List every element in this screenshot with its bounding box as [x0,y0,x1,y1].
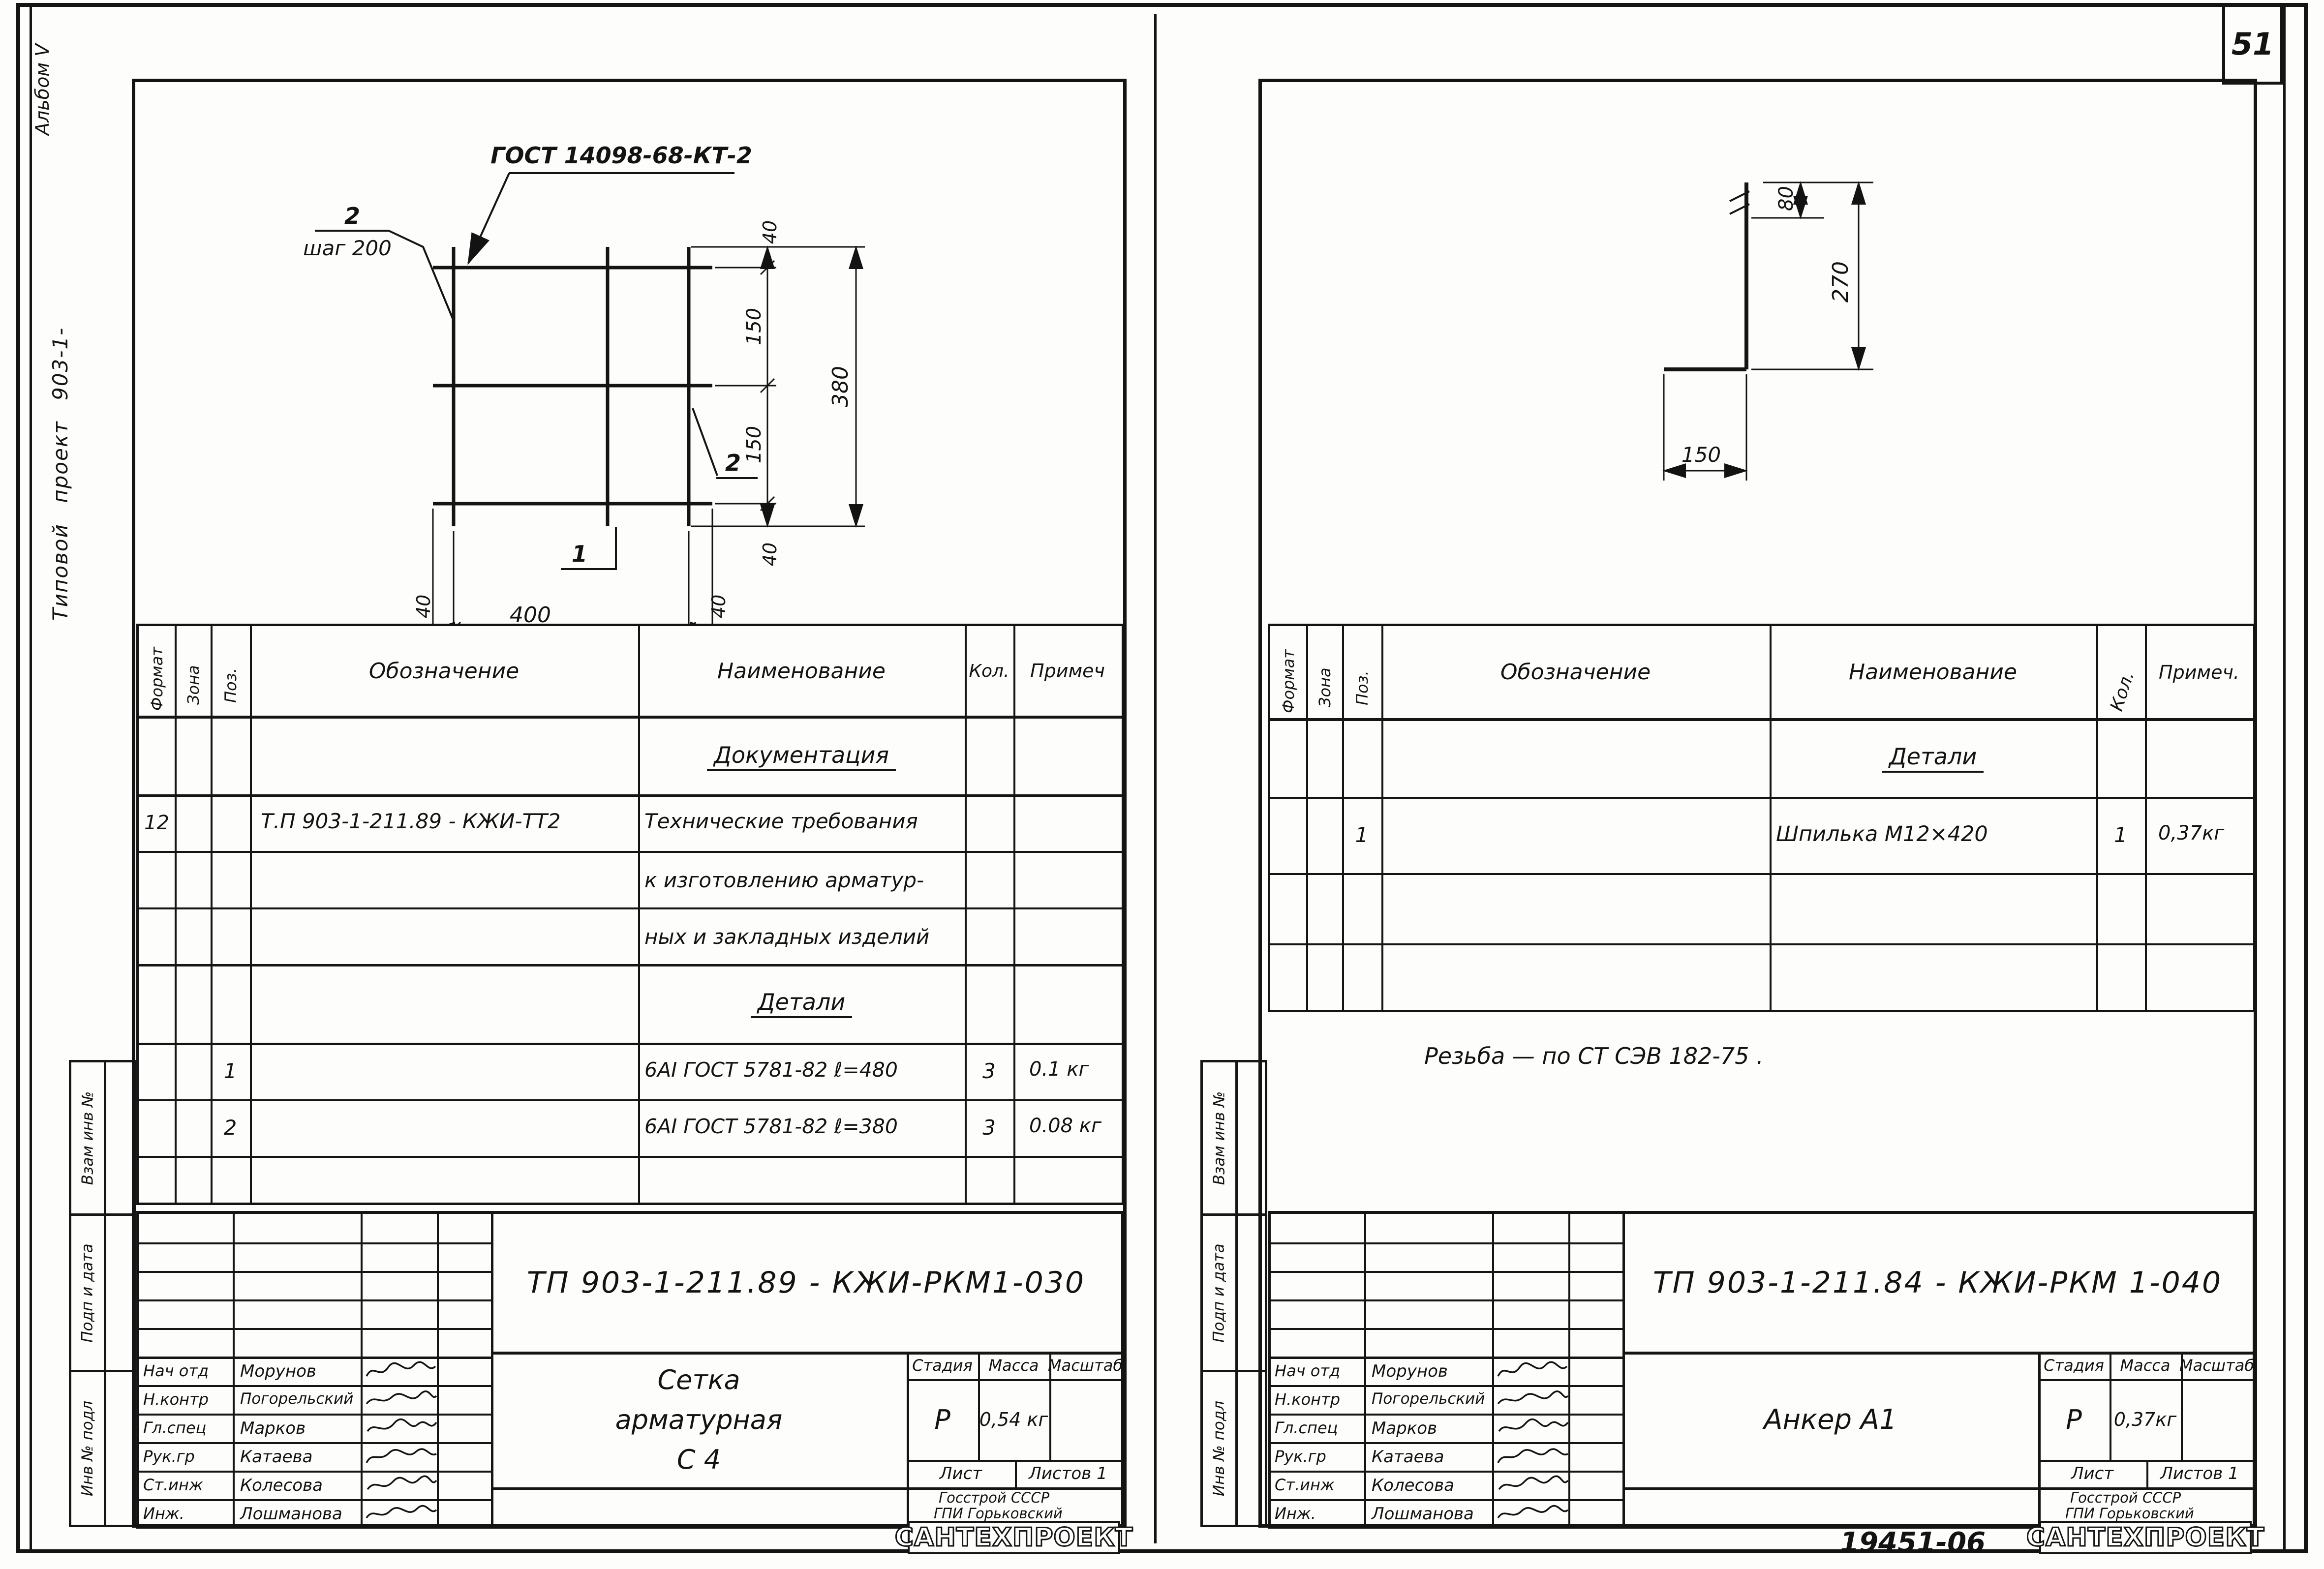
tb-row-line [1271,1242,1622,1244]
signer-name: Марков [1372,1418,1437,1438]
signature-scribble [1496,1360,1570,1382]
pos-value: 1 [1355,823,1369,847]
stamp-empty-cell [104,1062,133,1213]
dim-150-upper: 150 [743,308,765,345]
cell-pos: 1 [211,1043,250,1099]
signer-name: Колесова [1372,1476,1454,1495]
stage-label-cell: Стадия [2038,1352,2110,1379]
pos-mark-top-sub: шаг 200 [303,236,392,260]
stamp-vzam-inv-label: Взам инв № [79,1091,96,1185]
row-line [1270,718,2253,721]
row-line [1270,873,2253,875]
tb-row-line [139,1499,491,1501]
tb-col-line [361,1214,363,1526]
sheet-cell: Лист [2038,1460,2146,1487]
scale-label: Масштаб [2179,1356,2254,1375]
signer-role: Инж. [143,1504,184,1523]
org-logo-box: САНТЕХПРОЕКТ [2039,1521,2252,1554]
row-line [139,851,1122,853]
cell-note: 0,37кг [2158,822,2224,845]
left-title-block: ТП 903-1-211.89 - КЖИ-РКМ1-030 Сетка арм… [136,1211,1124,1529]
signer-name: Катаева [240,1447,312,1467]
album-label: Альбом V [31,44,53,135]
title-line3: С 4 [677,1444,721,1475]
cell-name-line3: ных и закладных изделий [644,925,929,949]
sheet-label: Лист [940,1464,982,1483]
signer-name: Лошманова [240,1504,342,1524]
header-designation-label: Обозначение [369,659,519,684]
signer-name: Погорельский [240,1390,353,1408]
right-title-block: ТП 903-1-211.84 - КЖИ-РКМ 1-040 Анкер А1… [1268,1211,2256,1529]
balloon-2: 2 [725,450,741,476]
tb-row-line [139,1442,491,1444]
cell-name-line2: к изготовлению арматур- [644,868,924,892]
scale-label-cell: Масштаб [1049,1352,1121,1379]
header-note-label: Примеч [1030,660,1105,682]
format-value: 12 [144,812,169,834]
dim-270: 270 [1828,261,1853,302]
right-edge-line [2283,3,2286,1553]
stamp-label-cell: Инв № подл [1203,1372,1235,1525]
header-designation: Обозначение [1381,626,1770,718]
signer-role: Гл.спец [1275,1418,1338,1437]
sheets-cell: Листов 1 [1015,1460,1121,1487]
tb-row-line [1271,1442,1622,1444]
stamp-vzam-inv-left: Взам инв № [69,1060,136,1216]
signer-name: Морунов [240,1361,316,1381]
header-pos: Поз. [221,668,240,703]
stamp-vzam-inv-label: Взам инв № [1210,1091,1228,1185]
org-line1: Госстрой СССР [939,1489,1049,1506]
signature-scribble [1496,1503,1570,1525]
tb-row-line [139,1242,491,1244]
sheets-label: Листов 1 [1029,1464,1107,1483]
mesh-bars [433,247,712,526]
tb-row-line [1271,1471,1622,1473]
pos-mark-top: 2 [344,203,360,229]
cell-note: 0.1 кг [1029,1058,1089,1081]
signer-name: Погорельский [1372,1390,1485,1408]
col-line [175,626,177,1203]
org-logo-box: САНТЕХПРОЕКТ [908,1521,1120,1554]
mass-value: 0,37кг [2114,1409,2177,1430]
signer-role: Н.контр [143,1390,209,1409]
stamp-podp-data-label: Подп и дата [79,1243,96,1342]
tb-row-line [1271,1357,1622,1359]
qty-value: 1 [2114,823,2127,847]
stamp-podp-data-left: Подп и дата [69,1213,136,1372]
row-line [139,964,1122,966]
header-designation: Обозначение [250,626,638,716]
cell-pos: 1 [1342,797,1381,873]
doc-number: ТП 903-1-211.84 - КЖИ-РКМ 1-040 [1653,1266,2222,1300]
signer-role: Ст.инж [1275,1476,1335,1494]
page-number: 51 [2232,26,2274,62]
org-line2: ГПИ Горьковский [2065,1505,2194,1522]
pos-value: 2 [224,1116,237,1140]
title-line1: Анкер А1 [1764,1404,1896,1436]
signature-scribble [365,1446,438,1468]
doc-number-cell: ТП 903-1-211.89 - КЖИ-РКМ1-030 [491,1214,1121,1352]
header-name: Наименование [638,626,965,716]
footer-code: 19451-06 [1840,1527,1986,1559]
signer-name: Морунов [1372,1361,1448,1381]
row-line [139,794,1122,797]
tb-col-line [233,1214,235,1526]
section-details: Детали [638,966,965,1040]
cell-name: 6АI ГОСТ 5781-82 ℓ=480 [644,1058,898,1082]
mass-value-cell: 0,37кг [2110,1379,2181,1460]
anchor-drawing: 80 270 150 [1268,82,2255,623]
thread-note: Резьба — по СТ СЭВ 182-75 . [1424,1043,1764,1069]
stage-label-cell: Стадия [907,1352,978,1379]
header-pos: Поз. [1353,670,1372,705]
left-edge-line [30,3,32,1553]
stamp-label-cell: Взам инв № [1203,1062,1235,1213]
title-cell: Сетка арматурная С 4 [491,1352,907,1487]
row-line [139,1156,1122,1158]
header-name-label: Наименование [1849,660,2017,685]
mesh-drawing: 40 150 150 40 380 40 400 40 480 ГОСТ 140… [137,82,1124,626]
dimension-lines-bottom [433,509,712,626]
stamp-label-cell: Подп и дата [71,1216,104,1370]
row-line [139,907,1122,909]
stamp-label-cell: Инв № подл [71,1372,104,1525]
signature-scribble [365,1360,438,1382]
signer-role: Нач отд [143,1361,209,1380]
dim-80: 80 [1775,186,1798,211]
cell-qty: 3 [965,1099,1013,1156]
cell-qty: 3 [965,1043,1013,1099]
pos-value: 1 [224,1059,237,1083]
mass-label: Масса [988,1356,1039,1375]
doc-number: ТП 903-1-211.89 - КЖИ-РКМ1-030 [527,1266,1085,1300]
stamp-inv-podl-left: Инв № подл [69,1370,136,1527]
signer-name: Лошманова [1372,1504,1474,1524]
scanned-drawing-page: 51 19451-06 52 Альбом V Типовой проект 9… [0,0,2324,1569]
stage-value-cell: Р [907,1379,978,1460]
signature-scribble [1496,1389,1570,1411]
section-details-label: Детали [1882,743,1984,773]
tb-row-line [139,1357,491,1359]
cell-name-line1: Технические требования [644,809,918,833]
tb-row-line [1271,1414,1622,1416]
dim-400: 400 [510,603,551,626]
scale-value-cell [2181,1379,2253,1460]
org-line2: ГПИ Горьковский [934,1505,1063,1522]
qty-value: 3 [982,1059,996,1083]
scale-label-cell: Масштаб [2181,1352,2253,1379]
signer-role: Рук.гр [1275,1447,1326,1466]
scale-value-cell [1049,1379,1121,1460]
org-logo-text: САНТЕХПРОЕКТ [895,1523,1133,1552]
signer-role: Ст.инж [143,1476,203,1494]
tb-row-line [1271,1385,1622,1387]
mass-value-cell: 0,54 кг [978,1379,1049,1460]
cell-qty: 1 [2096,797,2145,873]
stamp-inv-podl-label: Инв № подл [79,1401,96,1496]
page-number-box: 51 [2222,6,2283,85]
section-details-label: Детали [751,989,853,1018]
stamp-podp-data-label: Подп и дата [1210,1243,1228,1342]
signer-name: Марков [240,1418,306,1438]
title-cell: Анкер А1 [1622,1352,2038,1487]
tb-col-line [1364,1214,1366,1526]
sheet-divider-line [1154,14,1157,1543]
org-logo-text: САНТЕХПРОЕКТ [2026,1523,2264,1552]
signer-role: Рук.гр [143,1447,195,1466]
stamp-podp-data-right: Подп и дата [1200,1213,1267,1372]
sheets-cell: Листов 1 [2146,1460,2253,1487]
tb-row-line [1271,1328,1622,1330]
section-documentation: Документация [638,719,965,794]
right-spec-table: Формат Зона Поз. Обозначение Наименовани… [1268,624,2256,1012]
title-line1: Сетка [657,1364,740,1395]
stamp-empty-cell [104,1216,133,1370]
dim-40-top: 40 [759,220,781,244]
cell-pos: 2 [211,1099,250,1156]
stage-label: Стадия [2044,1356,2104,1375]
stage-value-cell: Р [2038,1379,2110,1460]
header-qty: Кол. [2107,669,2138,714]
tb-row-line [139,1471,491,1473]
cell-name: Шпилька М12×420 [1776,822,1988,846]
dim-150: 150 [1682,443,1721,467]
dim-40-right: 40 [708,595,730,618]
signature-scribble [1496,1446,1570,1468]
stamp-vzam-inv-right: Взам инв № [1200,1060,1267,1216]
signer-name: Катаева [1372,1447,1444,1467]
header-note: Примеч [1013,626,1122,716]
tb-col-line [1492,1214,1494,1526]
signer-name: Колесова [240,1476,323,1495]
signature-scribble [1496,1418,1570,1439]
header-designation-label: Обозначение [1500,660,1651,685]
signer-role: Н.контр [1275,1390,1340,1409]
sheet-cell: Лист [907,1460,1015,1487]
signature-scribble [365,1418,438,1439]
row-line [139,716,1122,719]
project-label: Типовой проект 903-1- [48,327,72,621]
anchor-dimension-lines [1664,182,1873,481]
header-qty-label: Кол. [969,661,1009,681]
col-line [1306,626,1308,1010]
signer-role: Инж. [1275,1504,1316,1523]
header-note-label: Примеч. [2159,662,2239,683]
signature-scribble [365,1389,438,1411]
dim-380-total: 380 [828,366,853,407]
tb-row-line [139,1385,491,1387]
gost-callout-text: ГОСТ 14098-68-КТ-2 [490,142,752,169]
tb-row-line [139,1414,491,1416]
signature-scribble [1496,1475,1570,1496]
section-documentation-label: Документация [707,742,896,771]
tb-row-line [139,1328,491,1330]
stamp-inv-podl-right: Инв № подл [1200,1370,1267,1527]
header-qty: Кол. [965,626,1013,716]
anchor-body [1664,182,1746,369]
cell-designation: Т.П 903-1-211.89 - КЖИ-ТТ2 [261,809,561,833]
signer-role: Гл.спец [143,1418,206,1437]
dim-40-left: 40 [413,595,434,618]
stage-value: Р [934,1404,950,1435]
header-name-label: Наименование [717,659,886,684]
signer-role: Нач отд [1275,1361,1340,1380]
mass-label: Масса [2120,1356,2170,1375]
section-details: Детали [1770,721,2096,795]
qty-value: 3 [982,1116,996,1140]
dim-150-lower: 150 [743,426,765,463]
doc-number-cell: ТП 903-1-211.84 - КЖИ-РКМ 1-040 [1622,1214,2253,1352]
dim-40-bottom: 40 [759,543,781,566]
sheets-label: Листов 1 [2160,1464,2238,1483]
header-zone: Зона [1315,667,1334,707]
stamp-label-cell: Взам инв № [71,1062,104,1213]
stamp-inv-podl-label: Инв № подл [1210,1401,1228,1496]
cell-name: 6АI ГОСТ 5781-82 ℓ=380 [644,1115,898,1138]
signature-scribble [365,1503,438,1525]
header-format: Формат [1279,649,1298,713]
left-spec-table: Формат Зона Поз. Обозначение Наименовани… [136,624,1124,1205]
tb-row-line [1271,1271,1622,1273]
mass-label-cell: Масса [978,1352,1049,1379]
scale-label: Масштаб [1048,1356,1123,1375]
mass-value: 0,54 кг [979,1409,1048,1430]
tb-row-line [139,1299,491,1301]
stamp-label-cell: Подп и дата [1203,1216,1235,1370]
tb-row-line [139,1271,491,1273]
org-line1: Госстрой СССР [2070,1489,2181,1506]
sheet-label: Лист [2071,1464,2113,1483]
title-line2: арматурная [615,1404,783,1435]
cell-note: 0.08 кг [1029,1115,1101,1137]
row-line [1270,943,2253,945]
header-name: Наименование [1770,626,2096,718]
stage-label: Стадия [912,1356,973,1375]
signature-scribble [365,1475,438,1496]
stage-value: Р [2066,1404,2082,1435]
balloon-1-leader [561,527,616,569]
cell-format: 12 [139,794,175,851]
balloon-1: 1 [572,541,587,567]
header-format: Формат [148,647,166,711]
tb-row-line [1271,1499,1622,1501]
gost-callout-leader [468,173,734,263]
header-note: Примеч. [2145,626,2253,718]
header-zone: Зона [184,665,203,705]
stamp-empty-cell [104,1372,133,1525]
mass-label-cell: Масса [2110,1352,2181,1379]
tb-row-line [1271,1299,1622,1301]
